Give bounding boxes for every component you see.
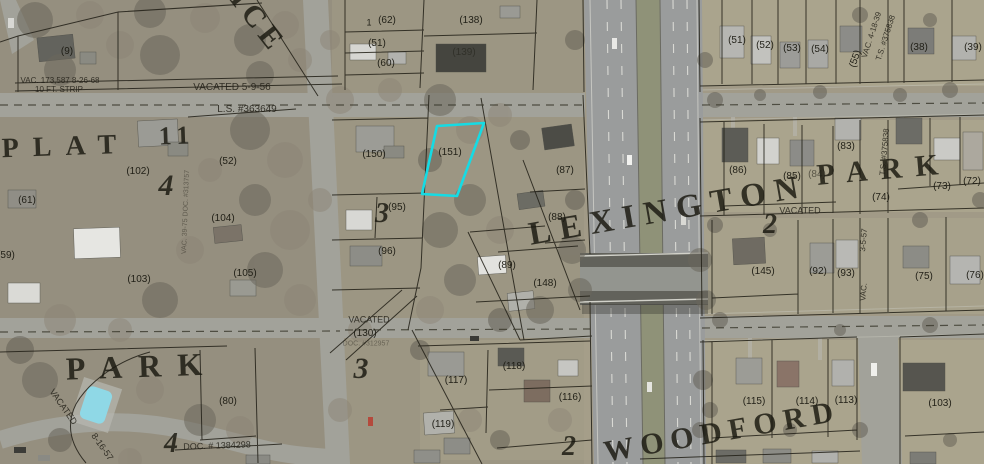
aerial-parcel-map[interactable]: PLAT114ICEPARK43322LEXINGTONWOODFORDPARK… — [0, 0, 984, 464]
map-canvas — [0, 0, 984, 464]
